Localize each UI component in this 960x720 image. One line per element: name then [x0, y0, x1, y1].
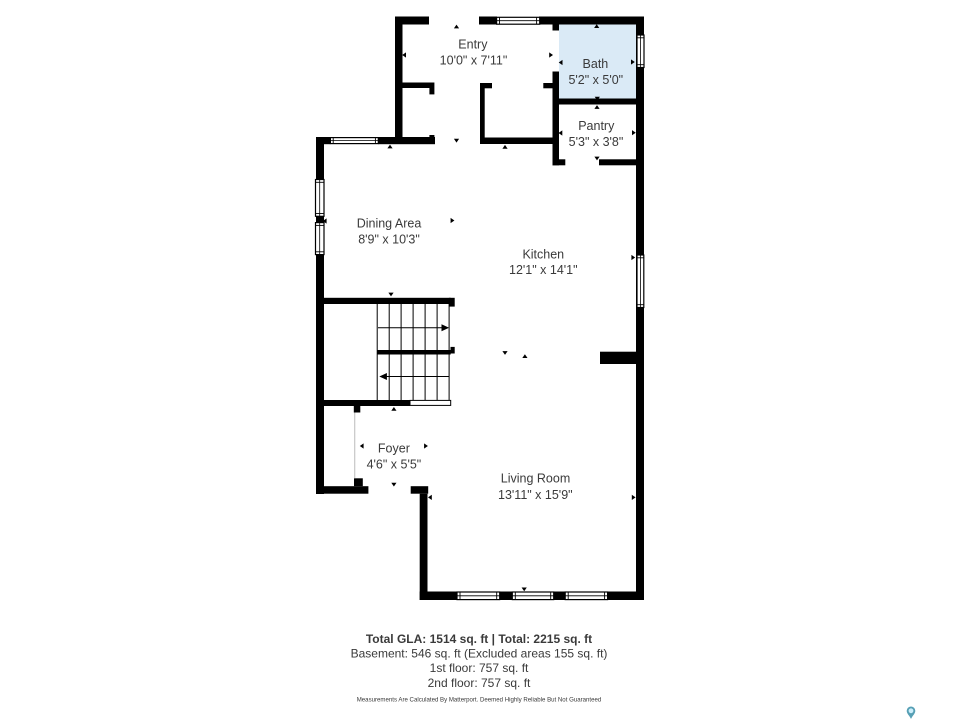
- svg-text:Pantry: Pantry: [578, 119, 615, 133]
- svg-text:10'0" x 7'11": 10'0" x 7'11": [440, 53, 508, 67]
- svg-text:12'1" x 14'1": 12'1" x 14'1": [509, 263, 578, 277]
- svg-text:5'3" x 3'8": 5'3" x 3'8": [569, 135, 624, 149]
- svg-text:1st floor: 757 sq. ft: 1st floor: 757 sq. ft: [430, 661, 529, 675]
- svg-text:Foyer: Foyer: [378, 441, 410, 455]
- svg-text:Bath: Bath: [583, 57, 609, 71]
- svg-text:Living Room: Living Room: [501, 472, 570, 486]
- svg-text:4'6" x 5'5": 4'6" x 5'5": [367, 457, 422, 471]
- svg-text:5'2" x 5'0": 5'2" x 5'0": [568, 73, 623, 87]
- svg-text:13'11" x 15'9": 13'11" x 15'9": [498, 488, 573, 502]
- svg-text:Dining Area: Dining Area: [357, 216, 422, 230]
- svg-text:Total GLA: 1514 sq. ft | Total: Total GLA: 1514 sq. ft | Total: 2215 sq.…: [366, 632, 592, 646]
- svg-text:Kitchen: Kitchen: [522, 247, 564, 261]
- svg-text:Measurements Are Calculated By: Measurements Are Calculated By Matterpor…: [357, 696, 602, 703]
- svg-text:8'9" x 10'3": 8'9" x 10'3": [358, 232, 420, 246]
- svg-text:Entry: Entry: [458, 38, 488, 52]
- svg-text:2nd floor: 757 sq. ft: 2nd floor: 757 sq. ft: [428, 676, 531, 690]
- svg-text:Basement: 546 sq. ft (Excluded: Basement: 546 sq. ft (Excluded areas 155…: [351, 647, 608, 661]
